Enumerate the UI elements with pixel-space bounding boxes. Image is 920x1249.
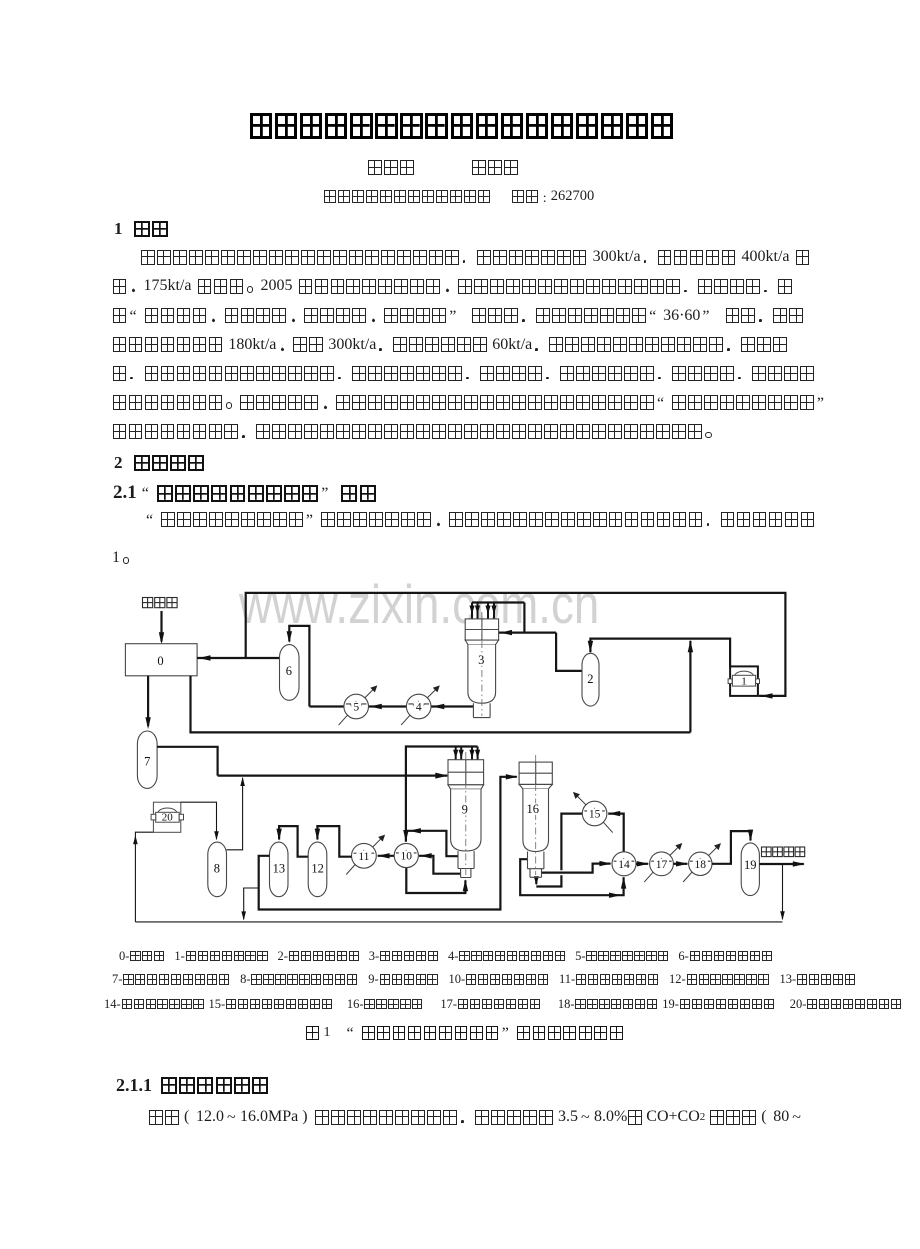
svg-text:7: 7 <box>144 754 150 768</box>
svg-text:10: 10 <box>401 851 413 863</box>
svg-text:3: 3 <box>478 653 484 667</box>
svg-text:8: 8 <box>214 861 220 875</box>
svg-text:9: 9 <box>462 803 468 817</box>
svg-text:0: 0 <box>157 654 163 668</box>
svg-text:1: 1 <box>741 675 747 687</box>
svg-text:16: 16 <box>527 802 540 816</box>
svg-text:14: 14 <box>618 859 630 871</box>
svg-text:19: 19 <box>744 858 757 872</box>
svg-text:6: 6 <box>286 664 292 678</box>
svg-text:15: 15 <box>589 809 601 821</box>
svg-text:5: 5 <box>353 702 359 714</box>
svg-text:2: 2 <box>587 672 593 686</box>
svg-text:18: 18 <box>695 859 707 871</box>
svg-text:4: 4 <box>416 702 422 714</box>
svg-text:13: 13 <box>273 861 286 875</box>
svg-text:20: 20 <box>162 812 174 824</box>
svg-text:12: 12 <box>311 861 324 875</box>
svg-text:11: 11 <box>358 851 369 863</box>
svg-text:17: 17 <box>656 859 668 871</box>
